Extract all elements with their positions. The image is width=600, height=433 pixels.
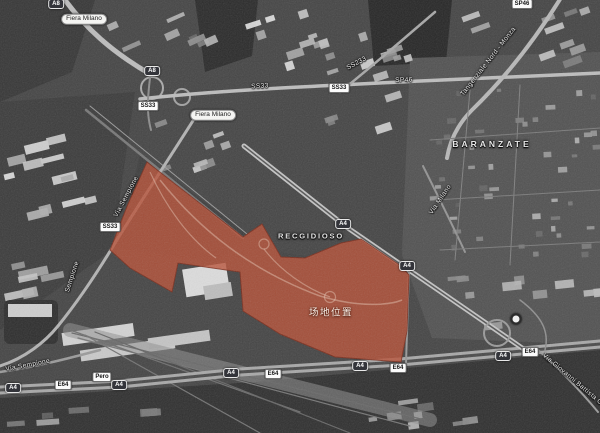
badge-e64-4: E64: [522, 347, 539, 357]
map-labels-layer: Fiera MilanoFiera MilanoBARANZATERECGIDI…: [0, 0, 600, 433]
road-name-ss33: SS33: [251, 83, 269, 90]
road-name-tangenziale-nord-monza: Tangenziale Nord - Monza: [460, 26, 518, 97]
badge-a8-top: A8: [48, 0, 64, 9]
road-name-sempione: Sempione: [65, 261, 81, 294]
metro-station-icon: [511, 314, 522, 325]
badge-a4-south-1: A4: [5, 383, 21, 393]
fiera-milano-label: Fiera Milano: [190, 110, 236, 121]
badge-a4-northeast-2: A4: [399, 261, 415, 271]
road-name-via-sempione-bottom: Via Sempione: [5, 359, 51, 374]
badge-a4-south-3: A4: [223, 368, 239, 378]
badge-ss33-sempione: SS33: [100, 222, 121, 232]
badge-ss33-center: SS33: [329, 83, 350, 93]
badge-ss33-fiera: SS33: [138, 101, 159, 111]
badge-a4-south-2: A4: [111, 380, 127, 390]
fiera-milano-label-top: Fiera Milano: [61, 14, 107, 25]
baranzate-label: BARANZATE: [452, 140, 531, 149]
badge-e64-1: E64: [55, 380, 72, 390]
badge-a4-south-4: A4: [352, 361, 368, 371]
road-name-via-sempione-upper: Via Sempione: [114, 176, 141, 219]
road-name-ss233: SS233: [346, 56, 368, 72]
recgidioso-label: RECGIDIOSO: [278, 232, 344, 240]
road-name-via-milano: Via Milano: [429, 184, 454, 216]
road-name-sp46: SP46: [395, 77, 413, 84]
badge-a4-south-5: A4: [495, 351, 511, 361]
badge-a4-northeast-1: A4: [335, 219, 351, 229]
badge-e64-3: E64: [390, 363, 407, 373]
badge-e64-2: E64: [265, 369, 282, 379]
badge-sp46-top: SP46: [512, 0, 533, 9]
site-location-label: 场地位置: [309, 308, 353, 318]
badge-a8-interchange: A8: [144, 66, 160, 76]
road-name-via-giovanni-battista: Via Giovanni Battista Grassi: [541, 353, 600, 417]
map-viewport[interactable]: Fiera MilanoFiera MilanoBARANZATERECGIDI…: [0, 0, 600, 433]
badge-pero: Pero: [92, 372, 111, 382]
